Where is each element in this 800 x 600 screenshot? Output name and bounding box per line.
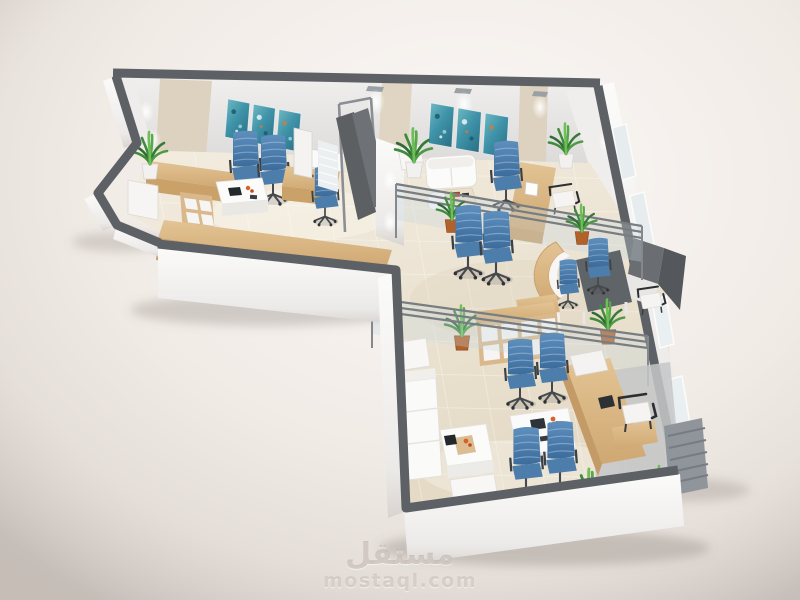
office-3d-render: مستقل mostaql.com xyxy=(0,0,800,600)
vignette xyxy=(0,0,800,600)
render-canvas xyxy=(0,0,800,600)
